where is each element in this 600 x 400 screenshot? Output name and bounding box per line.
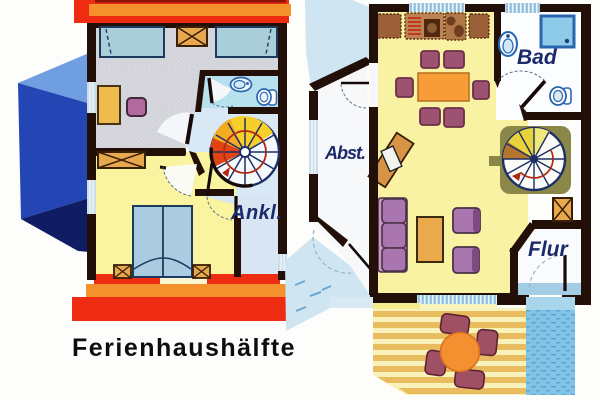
svg-text:Bad: Bad [517, 46, 558, 69]
svg-text:Flur: Flur [528, 238, 569, 261]
svg-text:Ferienhaushälfte: Ferienhaushälfte [72, 334, 296, 362]
svg-text:Abst.: Abst. [324, 143, 366, 163]
svg-text:Ankl.: Ankl. [230, 202, 282, 224]
